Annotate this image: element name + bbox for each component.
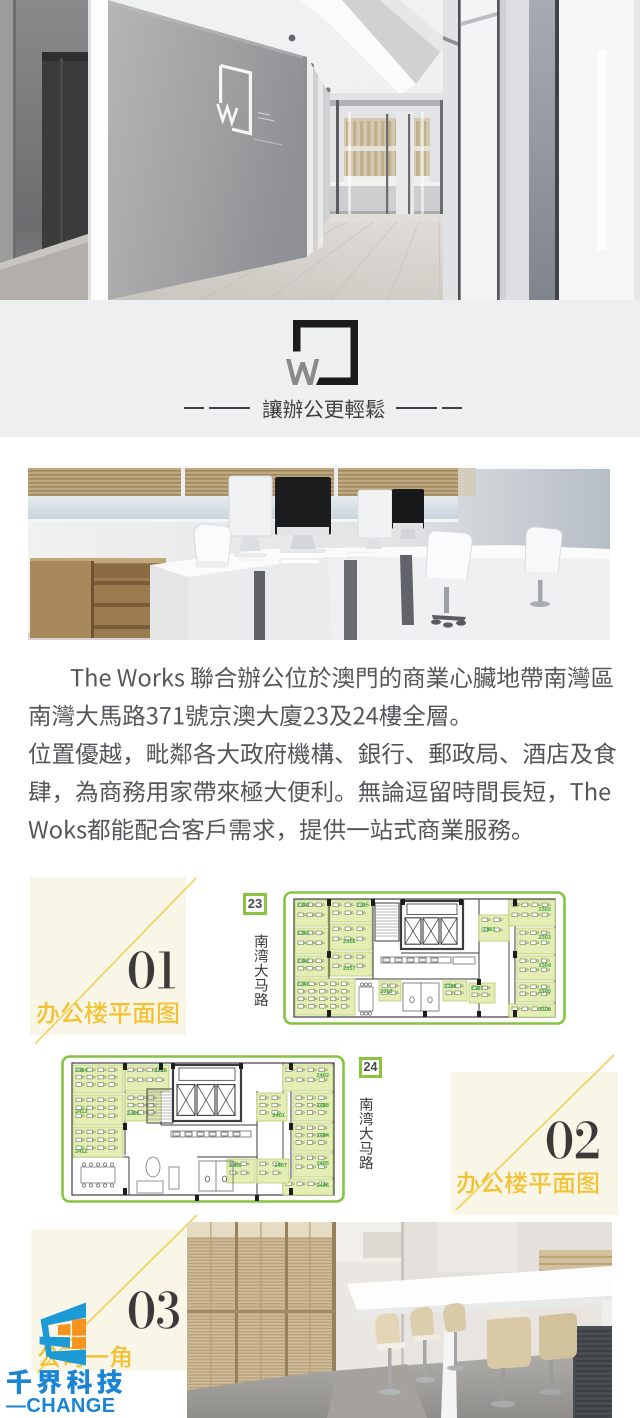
svg-text:2305: 2305 — [539, 989, 551, 995]
svg-text:2303: 2303 — [539, 935, 551, 941]
svg-text:2403: 2403 — [317, 1103, 329, 1109]
svg-text:2310: 2310 — [380, 989, 392, 995]
svg-text:2416: 2416 — [127, 1111, 139, 1117]
svg-text:2404: 2404 — [317, 1133, 330, 1139]
svg-text:2307: 2307 — [471, 986, 483, 992]
svg-text:2302: 2302 — [539, 907, 551, 913]
svg-text:2311: 2311 — [297, 982, 309, 988]
svg-text:2314: 2314 — [297, 903, 310, 909]
svg-text:2313: 2313 — [297, 931, 309, 937]
svg-text:2414: 2414 — [75, 1068, 88, 1074]
svg-text:2413: 2413 — [75, 1109, 87, 1115]
svg-text:2401: 2401 — [273, 1113, 285, 1119]
svg-text:2304: 2304 — [539, 963, 552, 969]
svg-text:2301: 2301 — [483, 927, 495, 933]
svg-text:2312: 2312 — [297, 959, 309, 965]
svg-text:2315: 2315 — [357, 903, 369, 909]
svg-text:2306: 2306 — [539, 1007, 551, 1013]
svg-text:2308: 2308 — [444, 984, 456, 990]
svg-text:2405: 2405 — [317, 1161, 329, 1167]
svg-text:2317: 2317 — [343, 966, 355, 972]
svg-text:2407: 2407 — [275, 1163, 287, 1169]
svg-text:2402: 2402 — [317, 1073, 329, 1079]
svg-text:2408: 2408 — [229, 1163, 241, 1169]
svg-text:2316: 2316 — [343, 939, 355, 945]
svg-text:2412: 2412 — [75, 1149, 87, 1155]
svg-text:2406: 2406 — [317, 1183, 329, 1189]
